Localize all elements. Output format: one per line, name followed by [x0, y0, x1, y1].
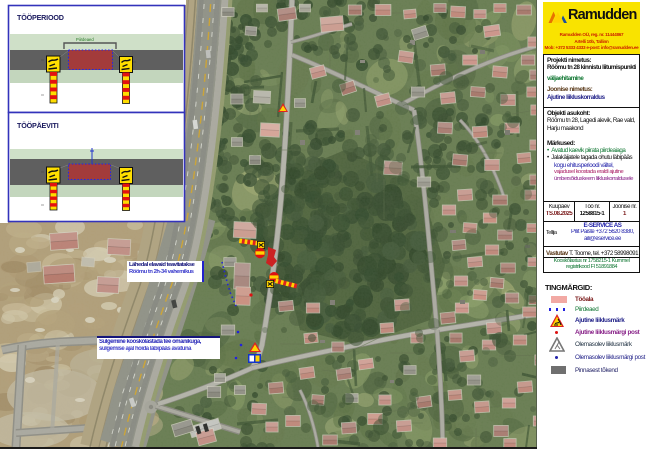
svg-text:TÖÖPÄEVITI: TÖÖPÄEVITI — [17, 121, 59, 130]
svg-text:TÖÖPERIOOD: TÖÖPERIOOD — [17, 13, 64, 22]
svg-text:Piirdeaed: Piirdeaed — [76, 37, 94, 42]
